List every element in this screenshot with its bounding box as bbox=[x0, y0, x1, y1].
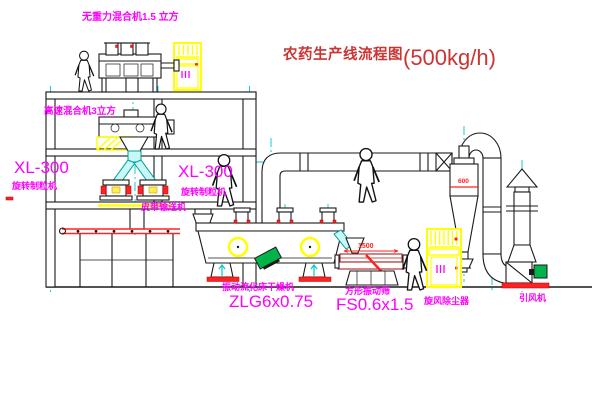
label-dust-collector: 旋风除尘器 bbox=[424, 297, 469, 306]
fan-base bbox=[502, 283, 549, 288]
label-granulator-mid-model: XL-300 bbox=[178, 163, 233, 180]
fan-motor bbox=[534, 265, 547, 278]
red-wall-mark bbox=[6, 197, 13, 200]
pesticide-line-flow-diagram: 农药生产线流程图(500kg/h) 无重力混合机1.5 立方 高速混合机3立方 … bbox=[0, 0, 600, 403]
square-vibrating-sieve bbox=[334, 230, 412, 285]
induced-draft-fan bbox=[502, 262, 549, 288]
granulators bbox=[100, 180, 169, 200]
label-sieve-model: FS0.6x1.5 bbox=[336, 296, 414, 313]
label-dryer-model: ZLG6x0.75 bbox=[229, 293, 313, 310]
label-belt-conveyor: 皮带输送机 bbox=[141, 203, 186, 212]
control-cabinet-2 bbox=[427, 229, 461, 287]
dim-cyclone-level: 600 bbox=[458, 179, 469, 186]
dim-sieve-length: 1500 bbox=[358, 243, 374, 250]
gravity-free-mixer bbox=[99, 43, 179, 92]
exhaust-stack bbox=[506, 169, 538, 262]
indicator-light bbox=[454, 237, 457, 240]
label-granulator-left-name: 旋转制粒机 bbox=[12, 182, 57, 191]
title-capacity: (500kg/h) bbox=[403, 45, 496, 70]
label-granulator-mid-name: 旋转制粒机 bbox=[181, 188, 226, 197]
label-granulator-left-model: XL-300 bbox=[14, 159, 69, 176]
diagram-title: 农药生产线流程图(500kg/h) bbox=[283, 47, 496, 69]
label-high-speed-mixer: 高速混合机3立方 bbox=[44, 107, 116, 117]
label-dryer-name: 振动流化床干燥机 bbox=[222, 283, 294, 292]
person-on-roof bbox=[75, 51, 94, 91]
title-text: 农药生产线流程图 bbox=[283, 47, 403, 63]
discharge-chute bbox=[130, 209, 144, 229]
label-gravity-mixer: 无重力混合机1.5 立方 bbox=[82, 13, 179, 23]
person-by-sieve bbox=[403, 239, 427, 290]
belt-conveyor bbox=[60, 228, 181, 287]
label-fan: 引风机 bbox=[519, 294, 546, 303]
